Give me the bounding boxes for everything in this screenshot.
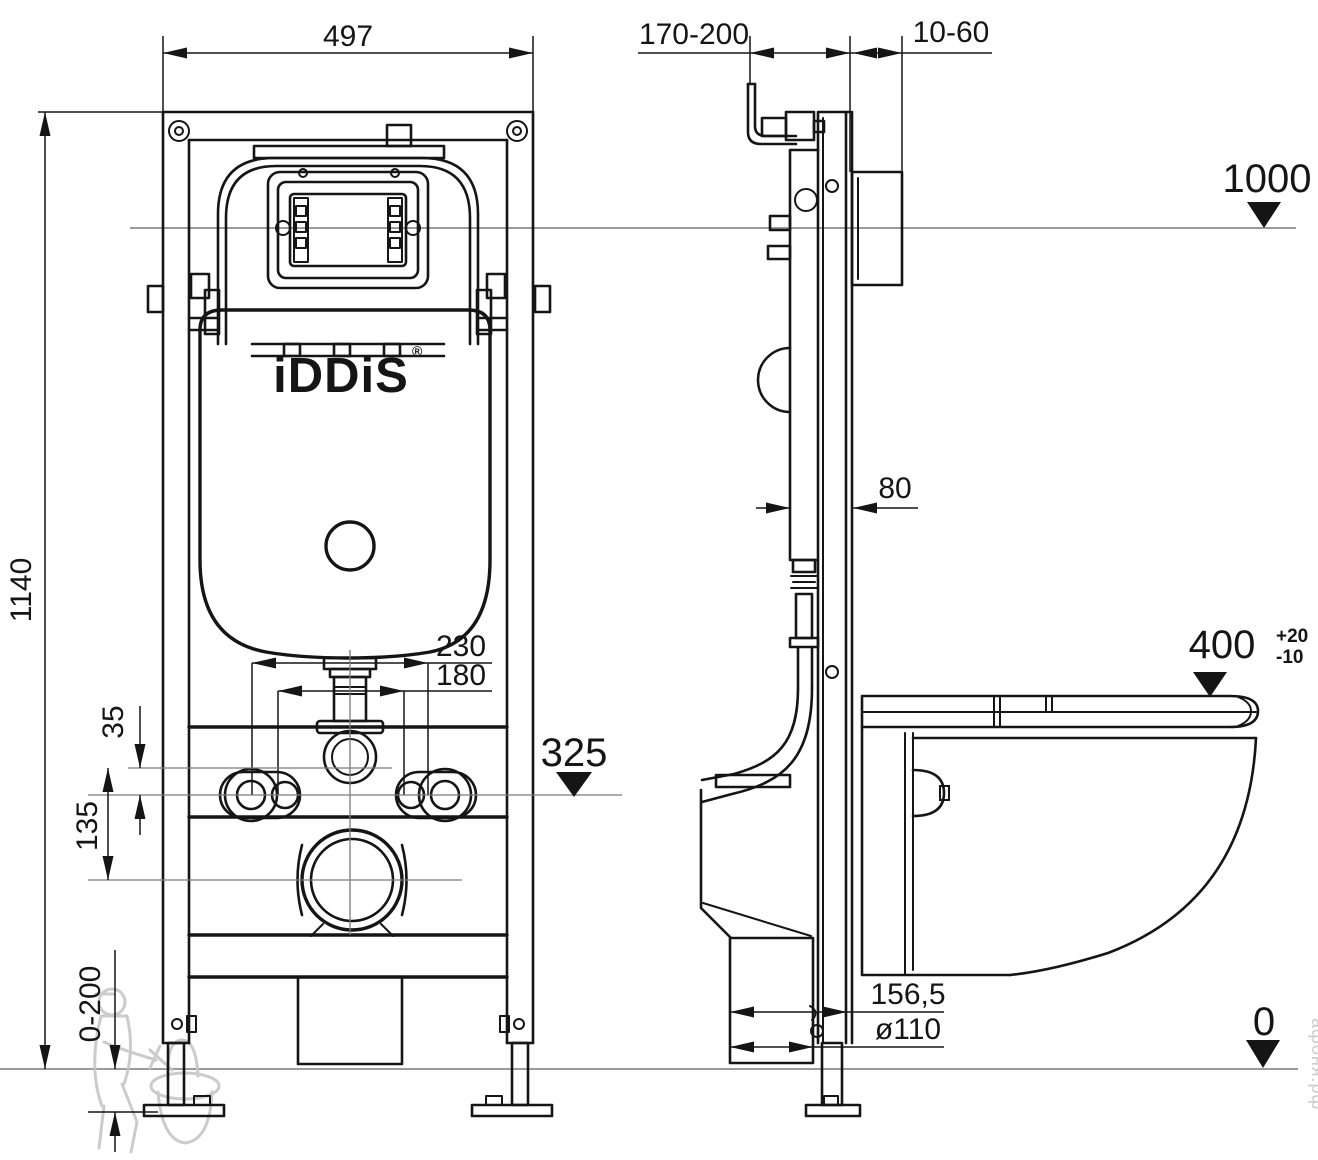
side-dimensions: 170-200 10-60 80 1000 400 +20 -10 156,5 … <box>638 16 1311 1068</box>
reference-lines <box>0 228 1298 1069</box>
dim-front-width: 497 <box>323 20 373 53</box>
dim-leg-adjust: 0-200 <box>74 966 107 1043</box>
cistern-side <box>758 150 818 560</box>
flush-pipe-side <box>702 560 818 802</box>
dim-floor-level: 0 <box>1253 1000 1275 1044</box>
site-watermark-text: афоня.рф <box>1308 1018 1318 1110</box>
outlet-box-front <box>298 977 402 1064</box>
frame-hole-top <box>826 180 838 192</box>
front-dimensions: 497 1140 230 180 35 135 325 <box>5 20 622 1152</box>
dim-seat-tol-minus: -10 <box>1276 647 1303 668</box>
dim-offset-small: 35 <box>97 705 130 738</box>
drain-opening <box>298 830 407 936</box>
side-view: 170-200 10-60 80 1000 400 +20 -10 156,5 … <box>638 16 1311 1116</box>
lower-crossbar <box>189 935 507 977</box>
installation-frame-drawing: афоня.рф iDDiS ® <box>0 0 1318 1160</box>
toilet-bowl-side <box>862 696 1258 975</box>
dim-seat-tol-plus: +20 <box>1276 626 1308 647</box>
frame-hole-mid <box>826 666 838 678</box>
dim-wall-offset: 170-200 <box>639 18 749 51</box>
access-window-frame <box>268 172 428 288</box>
outlet-duct-side <box>701 790 813 1063</box>
dim-outlet-diameter: ø110 <box>875 1013 941 1046</box>
side-frame-profile <box>818 112 852 1043</box>
dim-front-height: 1140 <box>5 558 38 623</box>
dim-level-button: 1000 <box>1223 157 1312 201</box>
dim-finish-layer: 10-60 <box>913 16 990 49</box>
dim-outlet-offset: 156,5 <box>870 978 945 1011</box>
flush-button-port <box>326 522 374 570</box>
dim-level-outlet: 325 <box>541 731 608 775</box>
dim-bolts-inner: 180 <box>436 659 486 692</box>
technical-drawing-canvas: афоня.рф iDDiS ® <box>0 0 1318 1160</box>
dim-frame-depth: 80 <box>878 472 911 505</box>
corner-screws <box>169 121 527 141</box>
dim-seat-height: 400 <box>1189 623 1256 667</box>
dim-offset-drain: 135 <box>71 801 104 851</box>
support-plate <box>716 775 790 787</box>
adjustable-feet <box>144 1016 552 1116</box>
front-view: iDDiS ® <box>5 20 622 1152</box>
